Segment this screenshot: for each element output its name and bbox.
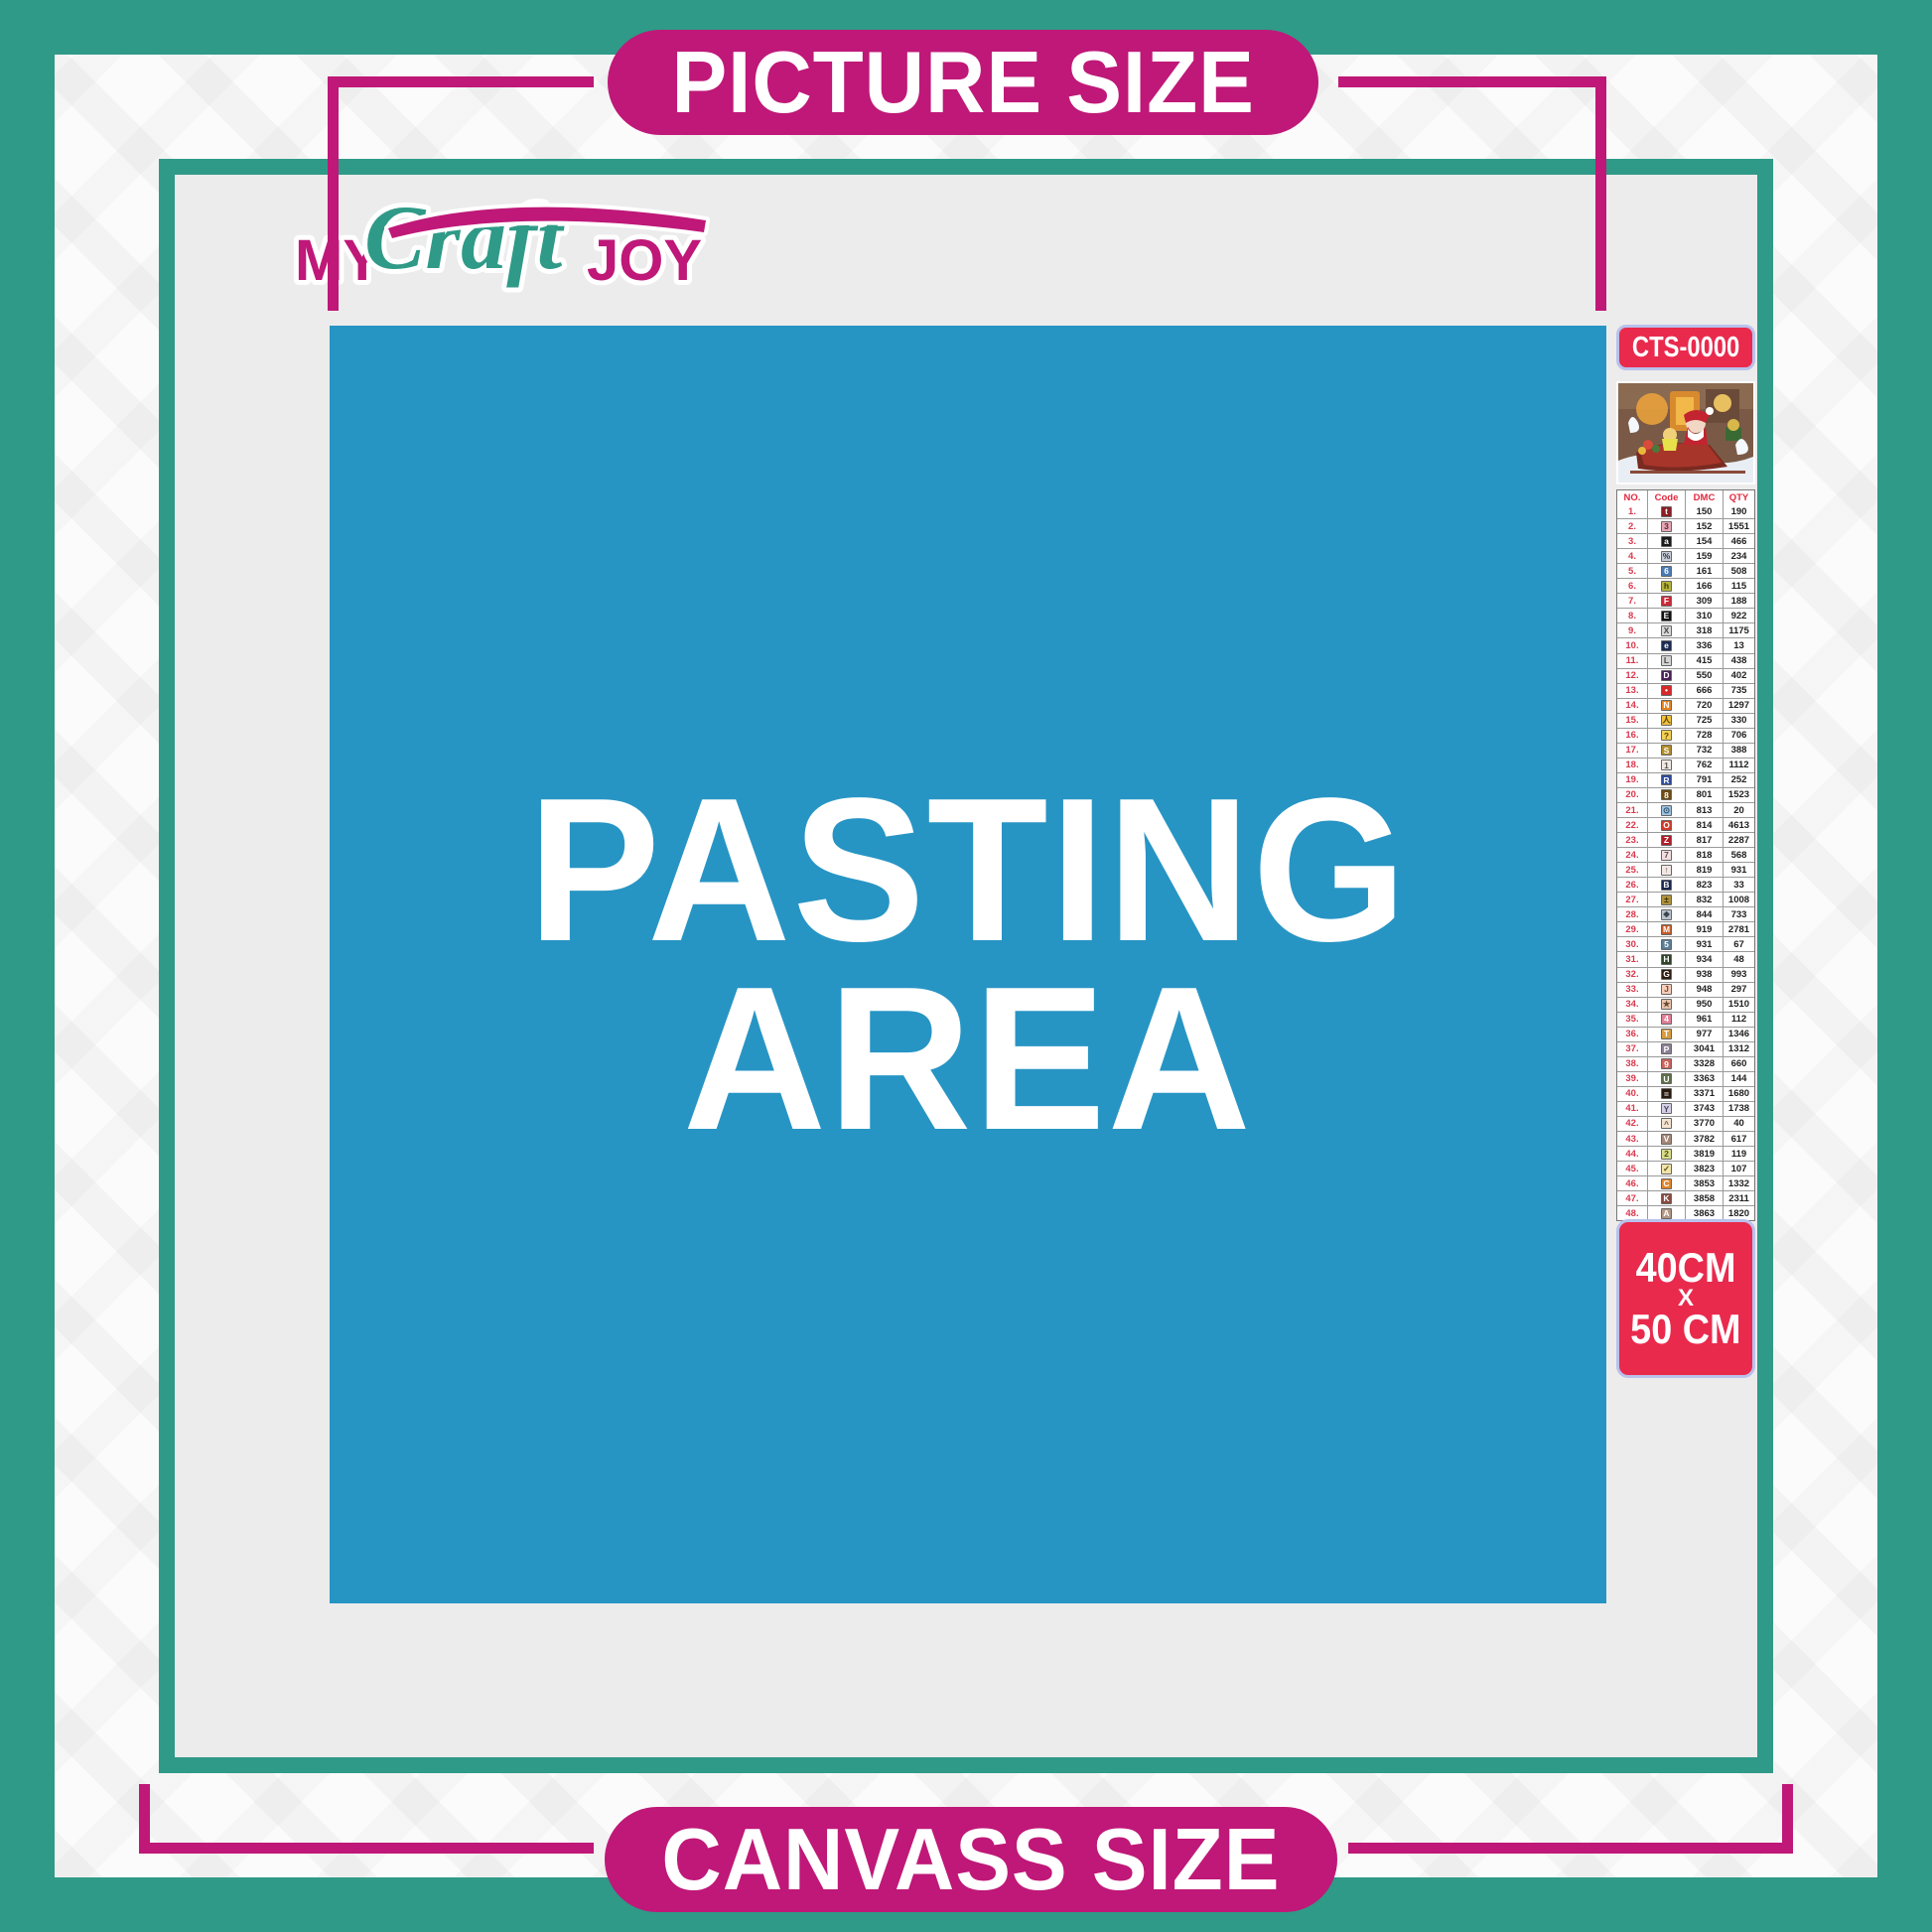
legend-cell-dmc: 161 (1685, 564, 1723, 578)
legend-table-row: 39. U 3363 144 (1617, 1071, 1754, 1086)
legend-cell-code: 8 (1647, 788, 1685, 802)
color-symbol-swatch: 1 (1661, 759, 1672, 770)
legend-cell-dmc: 813 (1685, 803, 1723, 817)
legend-cell-qty: 297 (1723, 983, 1754, 997)
legend-cell-dmc: 801 (1685, 788, 1723, 802)
legend-cell-dmc: 961 (1685, 1013, 1723, 1027)
legend-cell-code: ⊙ (1647, 803, 1685, 817)
legend-cell-qty: 330 (1723, 714, 1754, 728)
color-symbol-swatch: 2 (1661, 1149, 1672, 1160)
legend-cell-no: 6. (1617, 579, 1647, 593)
legend-cell-code: 人 (1647, 714, 1685, 728)
legend-cell-dmc: 3819 (1685, 1147, 1723, 1161)
legend-cell-code: D (1647, 669, 1685, 683)
legend-cell-qty: 1008 (1723, 893, 1754, 906)
color-symbol-swatch: 人 (1661, 715, 1672, 726)
legend-table-row: 21. ⊙ 813 20 (1617, 802, 1754, 817)
legend-table-row: 45. ✓ 3823 107 (1617, 1161, 1754, 1175)
legend-cell-code: H (1647, 952, 1685, 966)
legend-cell-code: P (1647, 1042, 1685, 1056)
legend-cell-qty: 1112 (1723, 759, 1754, 772)
legend-cell-no: 10. (1617, 638, 1647, 652)
legend-cell-code: K (1647, 1191, 1685, 1205)
legend-cell-dmc: 818 (1685, 848, 1723, 862)
color-symbol-swatch: N (1661, 700, 1672, 711)
legend-cell-qty: 733 (1723, 907, 1754, 921)
canvas-size-line1: 40CM (1636, 1248, 1736, 1288)
legend-cell-no: 40. (1617, 1087, 1647, 1101)
legend-cell-no: 46. (1617, 1176, 1647, 1190)
canvass-size-label: CANVASS SIZE (661, 1816, 1280, 1903)
legend-cell-no: 41. (1617, 1102, 1647, 1116)
legend-cell-code: Y (1647, 1102, 1685, 1116)
legend-table-row: 24. 7 818 568 (1617, 847, 1754, 862)
legend-table-row: 30. 5 931 67 (1617, 936, 1754, 951)
legend-cell-no: 33. (1617, 983, 1647, 997)
legend-cell-code: a (1647, 534, 1685, 548)
legend-cell-code: • (1647, 684, 1685, 698)
legend-cell-qty: 706 (1723, 729, 1754, 743)
legend-cell-code: ? (1647, 729, 1685, 743)
color-symbol-swatch: e (1661, 640, 1672, 651)
legend-table-row: 6. h 166 115 (1617, 578, 1754, 593)
legend-header-row: NO. Code DMC QTY (1617, 490, 1754, 504)
legend-cell-dmc: 150 (1685, 504, 1723, 518)
legend-cell-code: ★ (1647, 998, 1685, 1012)
color-symbol-swatch: ⊙ (1661, 805, 1672, 816)
legend-cell-no: 22. (1617, 818, 1647, 832)
legend-table-row: 14. N 720 1297 (1617, 698, 1754, 713)
legend-cell-code: ↑ (1647, 863, 1685, 877)
legend-cell-code: Z (1647, 833, 1685, 847)
color-symbol-swatch: ❖ (1661, 909, 1672, 920)
legend-table-row: 8. E 310 922 (1617, 608, 1754, 622)
legend-cell-code: 6 (1647, 564, 1685, 578)
legend-cell-no: 13. (1617, 684, 1647, 698)
color-symbol-swatch: A (1661, 1208, 1672, 1219)
legend-cell-no: 19. (1617, 773, 1647, 787)
legend-table-row: 36. T 977 1346 (1617, 1027, 1754, 1041)
legend-cell-qty: 568 (1723, 848, 1754, 862)
legend-cell-code: 3 (1647, 519, 1685, 533)
color-symbol-swatch: 5 (1661, 939, 1672, 950)
color-symbol-swatch: V (1661, 1134, 1672, 1145)
legend-cell-no: 43. (1617, 1132, 1647, 1146)
legend-cell-qty: 931 (1723, 863, 1754, 877)
picture-size-banner: PICTURE SIZE (608, 30, 1318, 135)
legend-cell-no: 12. (1617, 669, 1647, 683)
legend-cell-no: 44. (1617, 1147, 1647, 1161)
top-bracket-right-drop (1595, 76, 1606, 311)
legend-cell-no: 5. (1617, 564, 1647, 578)
brand-logo-joy: JOY (587, 228, 702, 293)
legend-cell-qty: 48 (1723, 952, 1754, 966)
legend-cell-dmc: 762 (1685, 759, 1723, 772)
canvas-size-badge: 40CM X 50 CM (1616, 1219, 1755, 1378)
legend-cell-qty: 1523 (1723, 788, 1754, 802)
legend-cell-code: ^ (1647, 1117, 1685, 1131)
legend-cell-qty: 2311 (1723, 1191, 1754, 1205)
legend-cell-code: 7 (1647, 848, 1685, 862)
legend-cell-no: 31. (1617, 952, 1647, 966)
legend-cell-no: 28. (1617, 907, 1647, 921)
legend-table-row: 2. 3 152 1551 (1617, 518, 1754, 533)
legend-table-row: 17. S 732 388 (1617, 743, 1754, 758)
legend-table-row: 34. ★ 950 1510 (1617, 997, 1754, 1012)
legend-table-row: 18. 1 762 1112 (1617, 758, 1754, 772)
color-symbol-swatch: a (1661, 536, 1672, 547)
color-symbol-swatch: C (1661, 1178, 1672, 1189)
color-symbol-swatch: 4 (1661, 1014, 1672, 1025)
legend-table-row: 33. J 948 297 (1617, 982, 1754, 997)
color-symbol-swatch: 7 (1661, 850, 1672, 861)
top-bracket-right-arm (1338, 76, 1606, 87)
legend-cell-qty: 20 (1723, 803, 1754, 817)
legend-cell-no: 42. (1617, 1117, 1647, 1131)
color-symbol-swatch: 6 (1661, 566, 1672, 577)
color-symbol-swatch: O (1661, 820, 1672, 831)
legend-cell-no: 1. (1617, 504, 1647, 518)
legend-cell-dmc: 152 (1685, 519, 1723, 533)
legend-cell-no: 9. (1617, 623, 1647, 637)
color-symbol-swatch: M (1661, 924, 1672, 935)
legend-cell-code: B (1647, 878, 1685, 892)
legend-table-row: 20. 8 801 1523 (1617, 787, 1754, 802)
color-symbol-swatch: t (1661, 506, 1672, 517)
legend-cell-dmc: 823 (1685, 878, 1723, 892)
legend-cell-qty: 617 (1723, 1132, 1754, 1146)
color-symbol-swatch: ★ (1661, 999, 1672, 1010)
legend-cell-no: 24. (1617, 848, 1647, 862)
legend-table-row: 4. % 159 234 (1617, 548, 1754, 563)
bottom-bracket-right-arm (1348, 1843, 1793, 1854)
legend-cell-dmc: 844 (1685, 907, 1723, 921)
legend-cell-dmc: 318 (1685, 623, 1723, 637)
color-symbol-swatch: = (1661, 1088, 1672, 1099)
legend-cell-dmc: 666 (1685, 684, 1723, 698)
color-symbol-swatch: • (1661, 685, 1672, 696)
legend-cell-dmc: 154 (1685, 534, 1723, 548)
legend-cell-dmc: 817 (1685, 833, 1723, 847)
legend-cell-code: N (1647, 699, 1685, 713)
pasting-area-line1: PASTING (528, 776, 1409, 965)
legend-table-row: 40. = 3371 1680 (1617, 1086, 1754, 1101)
legend-cell-qty: 1738 (1723, 1102, 1754, 1116)
legend-cell-dmc: 310 (1685, 609, 1723, 622)
legend-cell-code: t (1647, 504, 1685, 518)
legend-table-row: 31. H 934 48 (1617, 951, 1754, 966)
legend-cell-code: R (1647, 773, 1685, 787)
legend-cell-code: S (1647, 744, 1685, 758)
legend-cell-qty: 115 (1723, 579, 1754, 593)
sku-label: CTS-0000 (1632, 332, 1739, 364)
legend-cell-qty: 1551 (1723, 519, 1754, 533)
legend-cell-code: 1 (1647, 759, 1685, 772)
legend-table-row: 15. 人 725 330 (1617, 713, 1754, 728)
legend-cell-dmc: 3363 (1685, 1072, 1723, 1086)
canvass-size-banner: CANVASS SIZE (605, 1807, 1337, 1912)
legend-cell-dmc: 336 (1685, 638, 1723, 652)
legend-cell-no: 29. (1617, 922, 1647, 936)
color-symbol-swatch: ± (1661, 895, 1672, 905)
sku-badge: CTS-0000 (1616, 325, 1755, 370)
legend-table-row: 11. L 415 438 (1617, 653, 1754, 668)
legend-cell-dmc: 948 (1685, 983, 1723, 997)
legend-cell-dmc: 819 (1685, 863, 1723, 877)
kit-preview-image (1616, 381, 1755, 484)
legend-cell-code: h (1647, 579, 1685, 593)
legend-cell-dmc: 159 (1685, 549, 1723, 563)
legend-cell-qty: 466 (1723, 534, 1754, 548)
legend-table-row: 43. V 3782 617 (1617, 1131, 1754, 1146)
legend-table-row: 42. ^ 3770 40 (1617, 1116, 1754, 1131)
legend-cell-no: 26. (1617, 878, 1647, 892)
legend-header-code: Code (1647, 490, 1685, 504)
legend-cell-qty: 13 (1723, 638, 1754, 652)
color-symbol-swatch: ↑ (1661, 865, 1672, 876)
legend-table-row: 35. 4 961 112 (1617, 1012, 1754, 1027)
legend-cell-qty: 67 (1723, 937, 1754, 951)
legend-cell-code: V (1647, 1132, 1685, 1146)
legend-cell-no: 23. (1617, 833, 1647, 847)
legend-cell-no: 16. (1617, 729, 1647, 743)
legend-cell-no: 15. (1617, 714, 1647, 728)
legend-cell-dmc: 938 (1685, 968, 1723, 982)
legend-cell-dmc: 3743 (1685, 1102, 1723, 1116)
legend-table-row: 1. t 150 190 (1617, 504, 1754, 518)
legend-cell-qty: 1175 (1723, 623, 1754, 637)
legend-cell-qty: 144 (1723, 1072, 1754, 1086)
legend-table-row: 37. P 3041 1312 (1617, 1041, 1754, 1056)
pasting-area-line2: AREA (683, 965, 1253, 1154)
legend-cell-dmc: 934 (1685, 952, 1723, 966)
brand-logo: MY Craft JOY (293, 177, 710, 294)
legend-cell-dmc: 309 (1685, 594, 1723, 608)
legend-cell-no: 34. (1617, 998, 1647, 1012)
legend-cell-qty: 40 (1723, 1117, 1754, 1131)
legend-cell-code: ± (1647, 893, 1685, 906)
legend-cell-dmc: 415 (1685, 654, 1723, 668)
legend-cell-qty: 388 (1723, 744, 1754, 758)
legend-header-qty: QTY (1723, 490, 1754, 504)
legend-table-row: 9. X 318 1175 (1617, 622, 1754, 637)
legend-cell-dmc: 832 (1685, 893, 1723, 906)
legend-cell-qty: 1312 (1723, 1042, 1754, 1056)
legend-cell-qty: 1297 (1723, 699, 1754, 713)
legend-cell-code: = (1647, 1087, 1685, 1101)
legend-cell-code: O (1647, 818, 1685, 832)
legend-cell-qty: 735 (1723, 684, 1754, 698)
legend-cell-no: 37. (1617, 1042, 1647, 1056)
legend-table-row: 46. C 3853 1332 (1617, 1175, 1754, 1190)
legend-table-row: 28. ❖ 844 733 (1617, 906, 1754, 921)
color-symbol-swatch: L (1661, 655, 1672, 666)
legend-cell-dmc: 3328 (1685, 1057, 1723, 1071)
legend-cell-no: 27. (1617, 893, 1647, 906)
color-symbol-swatch: 8 (1661, 789, 1672, 800)
legend-table-row: 10. e 336 13 (1617, 637, 1754, 652)
legend-cell-qty: 2287 (1723, 833, 1754, 847)
legend-cell-qty: 438 (1723, 654, 1754, 668)
legend-cell-code: C (1647, 1176, 1685, 1190)
legend-table-row: 38. 9 3328 660 (1617, 1056, 1754, 1071)
legend-cell-dmc: 3823 (1685, 1162, 1723, 1175)
legend-cell-code: T (1647, 1028, 1685, 1041)
legend-cell-qty: 234 (1723, 549, 1754, 563)
legend-cell-qty: 4613 (1723, 818, 1754, 832)
legend-cell-dmc: 3858 (1685, 1191, 1723, 1205)
legend-cell-qty: 112 (1723, 1013, 1754, 1027)
color-symbol-swatch: B (1661, 880, 1672, 891)
pasting-area: PASTING AREA (330, 326, 1606, 1603)
legend-cell-no: 8. (1617, 609, 1647, 622)
legend-cell-qty: 508 (1723, 564, 1754, 578)
legend-cell-dmc: 550 (1685, 669, 1723, 683)
color-symbol-swatch: F (1661, 596, 1672, 607)
legend-cell-dmc: 3371 (1685, 1087, 1723, 1101)
legend-table-row: 26. B 823 33 (1617, 877, 1754, 892)
legend-cell-dmc: 950 (1685, 998, 1723, 1012)
legend-cell-code: M (1647, 922, 1685, 936)
legend-table-row: 23. Z 817 2287 (1617, 832, 1754, 847)
legend-cell-no: 35. (1617, 1013, 1647, 1027)
color-symbol-swatch: X (1661, 625, 1672, 636)
legend-cell-no: 7. (1617, 594, 1647, 608)
legend-cell-code: X (1647, 623, 1685, 637)
legend-cell-code: F (1647, 594, 1685, 608)
legend-cell-code: ✓ (1647, 1162, 1685, 1175)
legend-cell-qty: 1680 (1723, 1087, 1754, 1101)
legend-cell-qty: 993 (1723, 968, 1754, 982)
legend-cell-dmc: 814 (1685, 818, 1723, 832)
legend-cell-qty: 188 (1723, 594, 1754, 608)
legend-table-row: 44. 2 3819 119 (1617, 1146, 1754, 1161)
legend-cell-no: 45. (1617, 1162, 1647, 1175)
legend-cell-code: % (1647, 549, 1685, 563)
color-symbol-swatch: Z (1661, 835, 1672, 846)
legend-cell-code: J (1647, 983, 1685, 997)
color-legend-table: NO. Code DMC QTY 1. t 150 190 2. 3 152 1… (1616, 489, 1755, 1221)
legend-table-row: 12. D 550 402 (1617, 668, 1754, 683)
legend-cell-code: 2 (1647, 1147, 1685, 1161)
legend-cell-no: 30. (1617, 937, 1647, 951)
legend-cell-dmc: 732 (1685, 744, 1723, 758)
color-symbol-swatch: T (1661, 1029, 1672, 1039)
color-symbol-swatch: 9 (1661, 1058, 1672, 1069)
legend-cell-no: 17. (1617, 744, 1647, 758)
legend-cell-qty: 1346 (1723, 1028, 1754, 1041)
color-symbol-swatch: E (1661, 611, 1672, 621)
legend-cell-code: 4 (1647, 1013, 1685, 1027)
legend-cell-no: 47. (1617, 1191, 1647, 1205)
legend-cell-qty: 922 (1723, 609, 1754, 622)
color-symbol-swatch: D (1661, 670, 1672, 681)
legend-table-row: 25. ↑ 819 931 (1617, 862, 1754, 877)
color-symbol-swatch: ✓ (1661, 1164, 1672, 1174)
color-symbol-swatch: ? (1661, 730, 1672, 741)
legend-cell-code: L (1647, 654, 1685, 668)
legend-cell-no: 11. (1617, 654, 1647, 668)
color-symbol-swatch: % (1661, 551, 1672, 562)
legend-cell-code: E (1647, 609, 1685, 622)
legend-table-row: 13. • 666 735 (1617, 683, 1754, 698)
legend-cell-no: 20. (1617, 788, 1647, 802)
legend-cell-qty: 1510 (1723, 998, 1754, 1012)
legend-cell-dmc: 931 (1685, 937, 1723, 951)
legend-cell-no: 38. (1617, 1057, 1647, 1071)
legend-cell-code: G (1647, 968, 1685, 982)
legend-cell-no: 21. (1617, 803, 1647, 817)
legend-cell-qty: 252 (1723, 773, 1754, 787)
legend-table-row: 7. F 309 188 (1617, 593, 1754, 608)
legend-cell-code: 9 (1647, 1057, 1685, 1071)
picture-size-label: PICTURE SIZE (671, 39, 1254, 126)
legend-header-dmc: DMC (1685, 490, 1723, 504)
legend-cell-dmc: 919 (1685, 922, 1723, 936)
top-bracket-left-drop (328, 76, 339, 311)
legend-cell-no: 25. (1617, 863, 1647, 877)
legend-cell-dmc: 720 (1685, 699, 1723, 713)
color-symbol-swatch: Y (1661, 1103, 1672, 1114)
legend-cell-qty: 1332 (1723, 1176, 1754, 1190)
color-symbol-swatch: R (1661, 774, 1672, 785)
legend-cell-dmc: 3041 (1685, 1042, 1723, 1056)
color-symbol-swatch: ^ (1661, 1118, 1672, 1129)
legend-cell-qty: 33 (1723, 878, 1754, 892)
legend-table-row: 19. R 791 252 (1617, 772, 1754, 787)
legend-cell-code: e (1647, 638, 1685, 652)
legend-cell-qty: 119 (1723, 1147, 1754, 1161)
legend-table-row: 47. K 3858 2311 (1617, 1190, 1754, 1205)
legend-table-row: 32. G 938 993 (1617, 967, 1754, 982)
legend-cell-code: ❖ (1647, 907, 1685, 921)
legend-cell-dmc: 725 (1685, 714, 1723, 728)
legend-table-row: 16. ? 728 706 (1617, 728, 1754, 743)
legend-cell-no: 39. (1617, 1072, 1647, 1086)
color-symbol-swatch: J (1661, 984, 1672, 995)
legend-cell-code: U (1647, 1072, 1685, 1086)
top-bracket-left-arm (328, 76, 594, 87)
legend-cell-dmc: 3782 (1685, 1132, 1723, 1146)
canvas-size-line3: 50 CM (1630, 1310, 1740, 1349)
legend-cell-dmc: 166 (1685, 579, 1723, 593)
color-symbol-swatch: 3 (1661, 521, 1672, 532)
color-symbol-swatch: H (1661, 954, 1672, 965)
legend-table-row: 29. M 919 2781 (1617, 921, 1754, 936)
legend-cell-dmc: 728 (1685, 729, 1723, 743)
legend-cell-qty: 660 (1723, 1057, 1754, 1071)
legend-table-row: 27. ± 832 1008 (1617, 892, 1754, 906)
color-symbol-swatch: K (1661, 1193, 1672, 1204)
legend-cell-qty: 107 (1723, 1162, 1754, 1175)
legend-cell-dmc: 977 (1685, 1028, 1723, 1041)
legend-cell-no: 3. (1617, 534, 1647, 548)
legend-table-row: 3. a 154 466 (1617, 533, 1754, 548)
legend-cell-no: 14. (1617, 699, 1647, 713)
legend-cell-no: 2. (1617, 519, 1647, 533)
legend-cell-dmc: 3770 (1685, 1117, 1723, 1131)
color-symbol-swatch: h (1661, 581, 1672, 592)
legend-cell-code: 5 (1647, 937, 1685, 951)
legend-cell-no: 18. (1617, 759, 1647, 772)
legend-cell-qty: 402 (1723, 669, 1754, 683)
legend-cell-dmc: 791 (1685, 773, 1723, 787)
bottom-bracket-left-arm (139, 1843, 594, 1854)
legend-header-no: NO. (1617, 490, 1647, 504)
product-infographic: { "brand": { "my": "MY", "craft": "Craft… (0, 0, 1932, 1932)
legend-table-row: 5. 6 161 508 (1617, 563, 1754, 578)
legend-table-row: 41. Y 3743 1738 (1617, 1101, 1754, 1116)
